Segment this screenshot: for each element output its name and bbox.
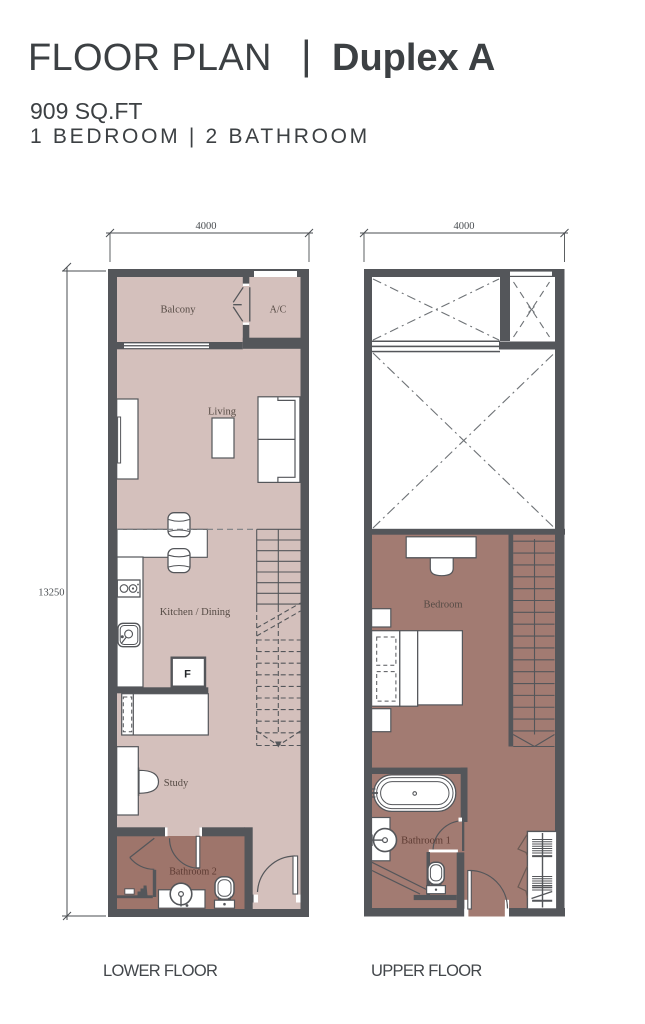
svg-text:Bedroom: Bedroom — [423, 600, 462, 611]
svg-text:Study: Study — [164, 778, 189, 789]
svg-text:Bathroom 2: Bathroom 2 — [169, 867, 217, 878]
svg-text:4000: 4000 — [454, 221, 475, 232]
svg-text:A/C: A/C — [270, 305, 287, 316]
svg-text:Bathroom 1: Bathroom 1 — [401, 836, 451, 847]
svg-text:Kitchen / Dining: Kitchen / Dining — [160, 607, 231, 618]
svg-text:4000: 4000 — [196, 221, 217, 232]
svg-text:13250: 13250 — [38, 588, 64, 599]
svg-text:Balcony: Balcony — [161, 305, 197, 316]
svg-text:F: F — [184, 669, 191, 681]
svg-text:Living: Living — [208, 407, 237, 418]
